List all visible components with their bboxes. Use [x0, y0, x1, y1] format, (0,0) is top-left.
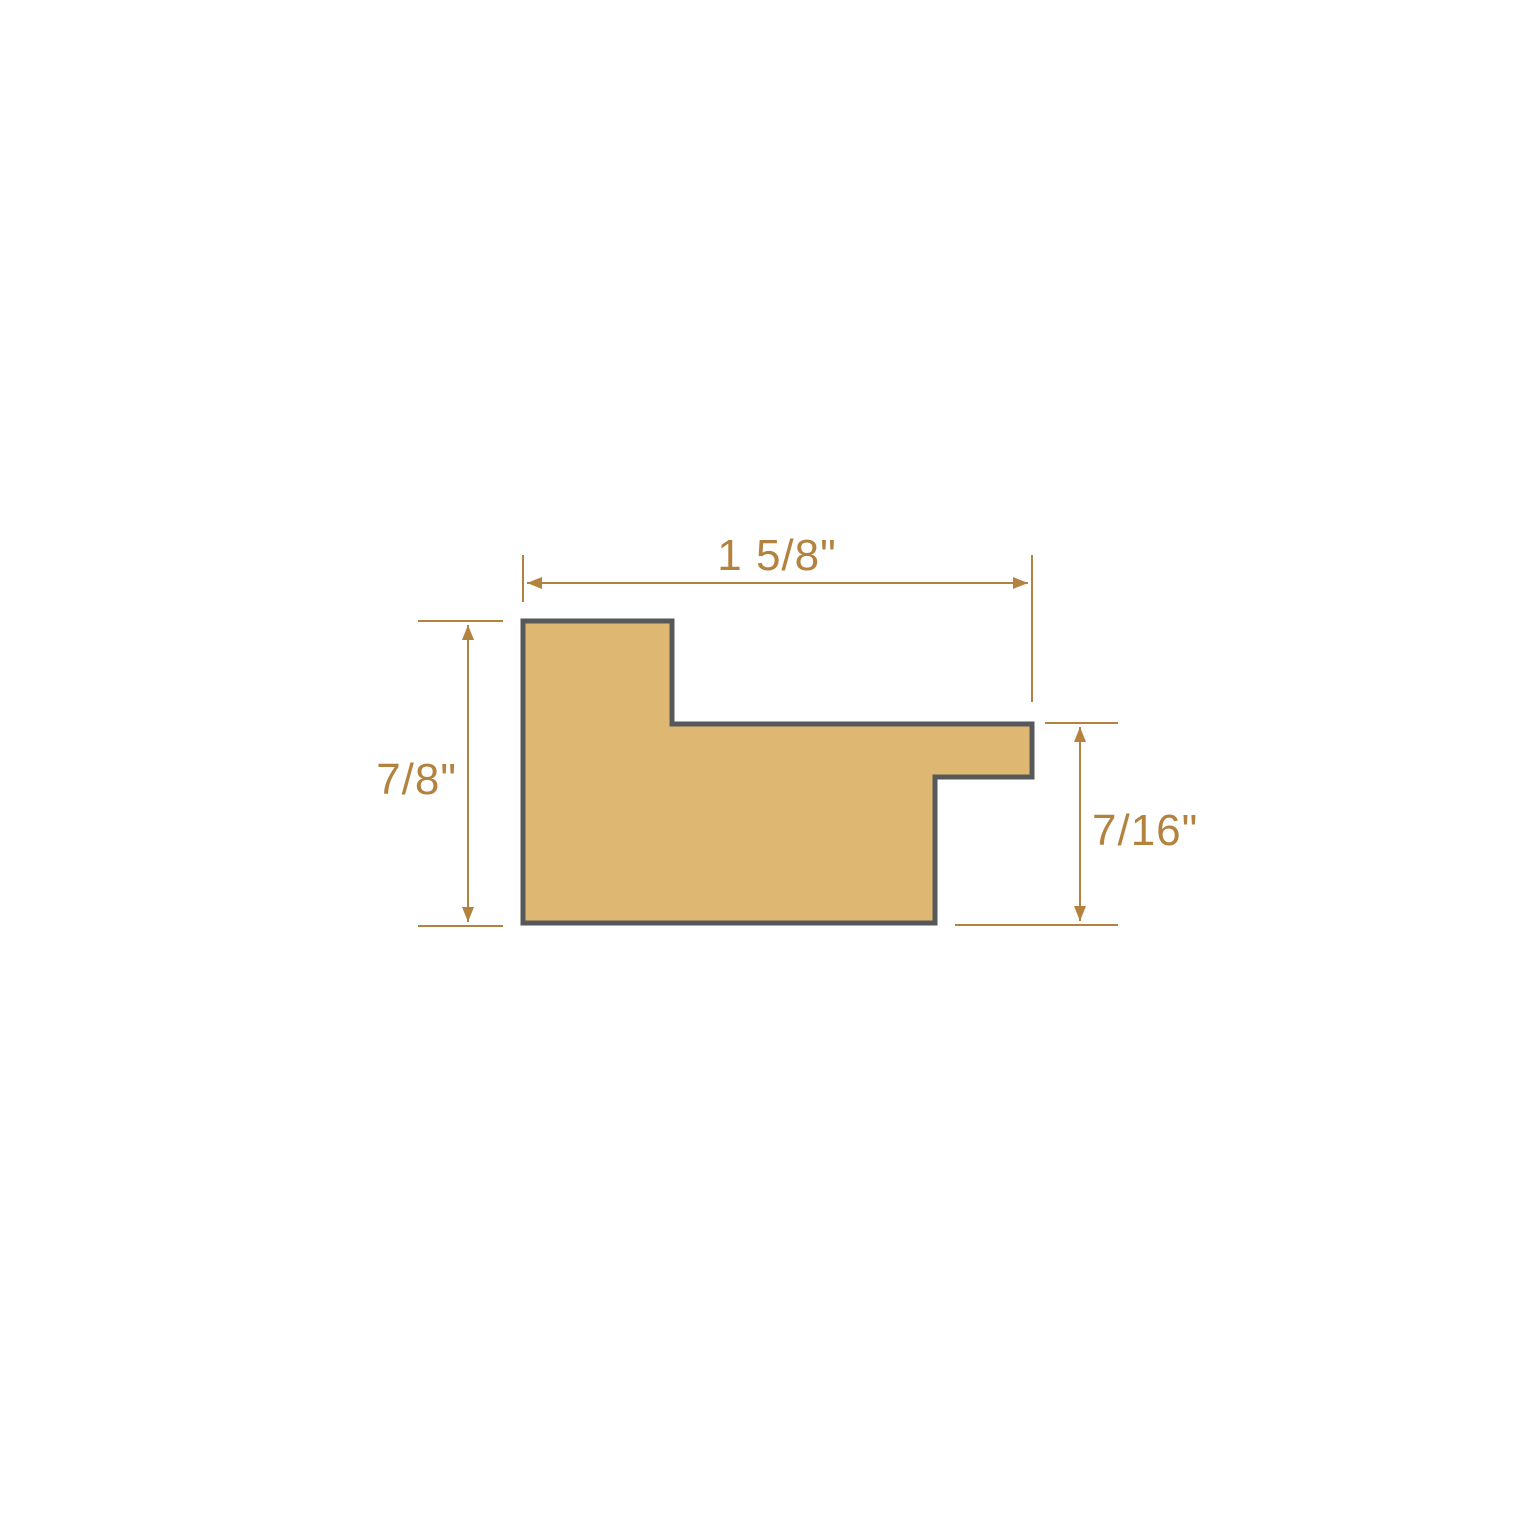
dimension-overall-height-label: 7/8" — [376, 755, 457, 804]
dimension-overall-height: 7/8" — [376, 621, 503, 926]
dimension-rabbet-height-label: 7/16" — [1092, 806, 1198, 855]
moulding-profile-diagram: 1 5/8" 7/8" 7/16" — [0, 0, 1536, 1536]
moulding-profile-shape — [523, 621, 1032, 923]
dimension-overall-width-label: 1 5/8" — [717, 531, 836, 580]
diagram-page: 1 5/8" 7/8" 7/16" — [0, 0, 1536, 1536]
